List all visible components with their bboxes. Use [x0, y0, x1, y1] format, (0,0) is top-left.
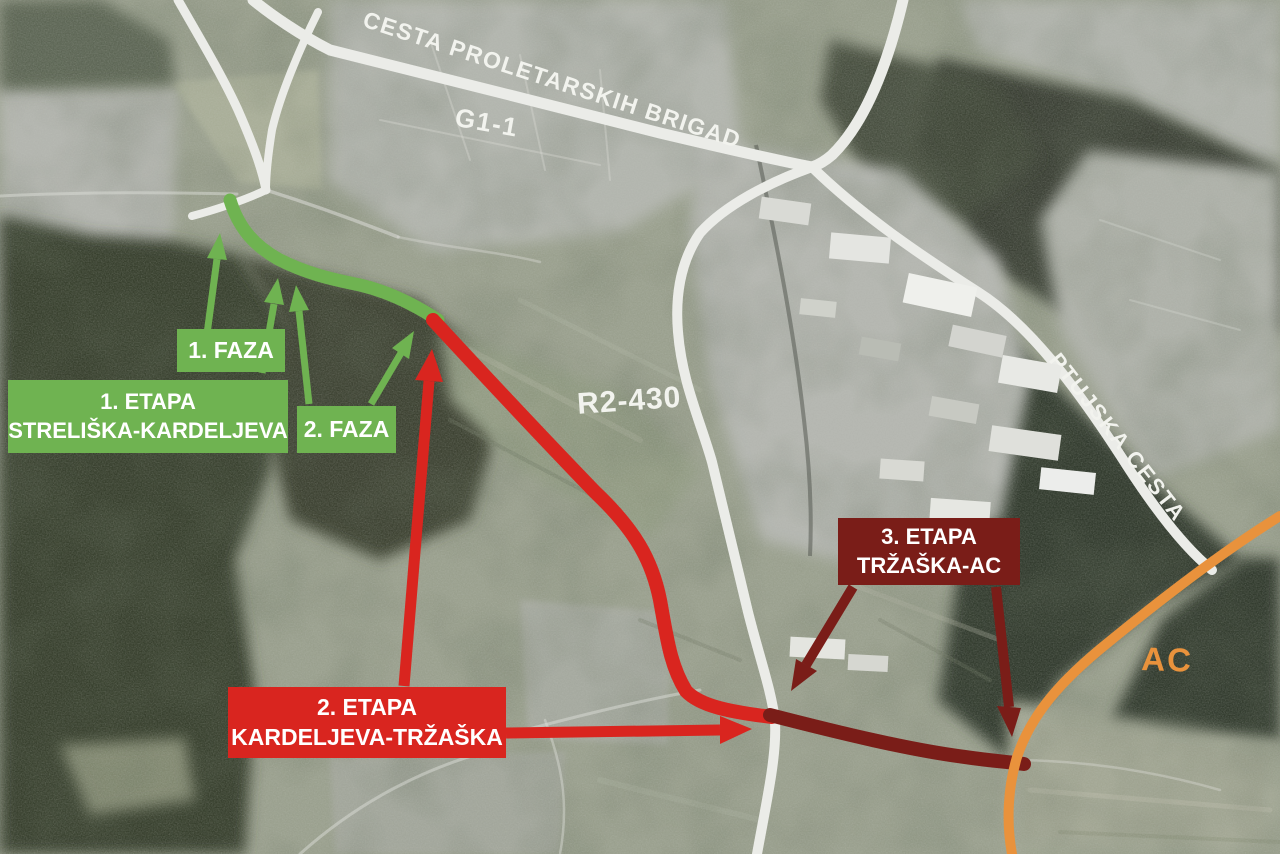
stage-box-faza-1-label: 1. FAZA: [188, 336, 274, 365]
stage-box-etapa-3-line1: 3. ETAPA: [881, 523, 977, 551]
stage-box-etapa-1: 1. ETAPA STRELIŠKA-KARDELJEVA: [8, 380, 288, 453]
stage-box-etapa-2-line2: KARDELJEVA-TRŽAŠKA: [231, 723, 503, 752]
stage-box-etapa-1-line2: STRELIŠKA-KARDELJEVA: [8, 417, 288, 445]
aerial-map: CESTA PROLETARSKIH BRIGAD G1-1 R2-430 PT…: [0, 0, 1280, 854]
stage-box-etapa-3: 3. ETAPA TRŽAŠKA-AC: [838, 518, 1020, 585]
road-label-r2-430: R2-430: [576, 381, 683, 422]
stage-box-etapa-1-line1: 1. ETAPA: [100, 388, 196, 416]
road-label-ac-motorway: AC: [1141, 640, 1194, 680]
stage-box-etapa-2-line1: 2. ETAPA: [317, 693, 417, 722]
stage-box-faza-2: 2. FAZA: [297, 406, 396, 453]
stage-box-faza-1: 1. FAZA: [177, 329, 285, 372]
stage-box-etapa-2: 2. ETAPA KARDELJEVA-TRŽAŠKA: [228, 687, 506, 758]
stage-box-faza-2-label: 2. FAZA: [304, 415, 390, 444]
stage-box-etapa-3-line2: TRŽAŠKA-AC: [857, 552, 1001, 580]
